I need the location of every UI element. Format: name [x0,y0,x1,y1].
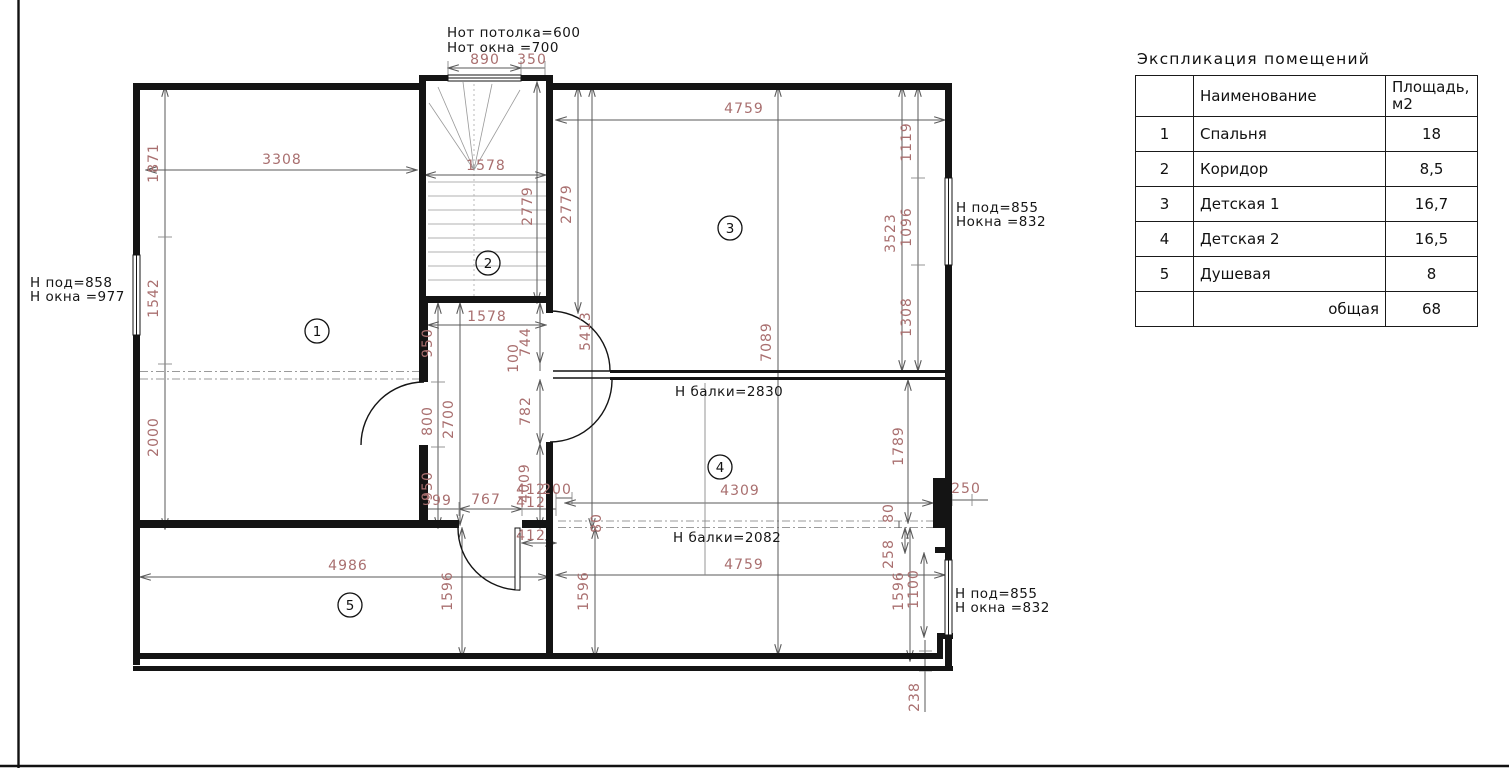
dimension-label: 800 [420,406,436,436]
dimension-label: 80 [881,503,897,523]
explication-title: Экспликация помещений [1137,50,1477,68]
room-number-cell: 4 [1136,222,1194,257]
header-area-line2: м2 [1392,96,1471,113]
dimension-label: 7089 [759,322,775,362]
header-number-cell [1136,76,1194,117]
dimension-label: 200 [542,482,572,498]
room-number-cell: 5 [1136,257,1194,292]
room-name-cell: Детская 2 [1194,222,1386,257]
table-row: 4Детская 216,5 [1136,222,1478,257]
room-area-cell: 68 [1386,292,1478,327]
dimension-label: 3308 [262,152,302,168]
header-name-cell: Наименование [1194,76,1386,117]
room-number-cell [1136,292,1194,327]
table-header-row: Наименование Площадь, м2 [1136,76,1478,117]
room-number: 1 [313,324,322,340]
header-area-cell: Площадь, м2 [1386,76,1478,117]
dimension-label: 2779 [520,186,536,226]
height-annotation: Hот потолка=600 [447,25,580,41]
dimension-label: 767 [471,492,501,508]
table-row: 3Детская 116,7 [1136,187,1478,222]
dimension-label: 1100 [906,569,922,609]
dimension-label: 4009 [517,463,533,503]
room-name-cell: Спальня [1194,117,1386,152]
dimension-label: 2700 [441,399,457,439]
table-row: 1Спальня18 [1136,117,1478,152]
dimension-label: 4309 [720,483,760,499]
dimension-label: 250 [951,481,981,497]
room-explication: Экспликация помещений Наименование Площа… [1135,50,1477,327]
room-name-cell: Душевая [1194,257,1386,292]
dimension-label: 1578 [467,309,507,325]
dimension-label: 1542 [146,278,162,318]
dimension-label: 1789 [891,426,907,466]
dimension-label: 2000 [146,417,162,457]
room-number: 5 [346,598,355,614]
dimension-label: 350 [517,52,547,68]
room-name-cell: общая [1194,292,1386,327]
dimension-label: 4986 [328,558,368,574]
room-area-cell: 8 [1386,257,1478,292]
dimension-label: 1596 [576,571,592,611]
dimension-label: 950 [420,471,436,501]
room-number: 4 [716,460,725,476]
table-row: 2Коридор8,5 [1136,152,1478,187]
room-name-cell: Коридор [1194,152,1386,187]
room-number: 2 [484,256,493,272]
header-area-line1: Площадь, [1392,79,1471,96]
dimension-label: 1308 [899,297,915,337]
dimension-label: 4759 [724,101,764,117]
dimension-label: 1119 [899,122,915,162]
dimension-labels: 8903503308157847591578399767412200412412… [146,52,981,712]
room-number-cell: 3 [1136,187,1194,222]
table-total-row: общая68 [1136,292,1478,327]
room-area-cell: 8,5 [1386,152,1478,187]
height-annotation: Нокна =832 [956,214,1046,230]
room-area-cell: 18 [1386,117,1478,152]
dimension-label: 412 [516,528,546,544]
dimension-label: 1596 [891,571,907,611]
dimension-label: 890 [470,52,500,68]
height-annotation: H балки=2082 [673,530,781,546]
dimension-label: 258 [881,539,897,569]
room-number: 3 [726,221,735,237]
room-number-cell: 1 [1136,117,1194,152]
height-annotation: H балки=2830 [675,384,783,400]
dimension-label: 3523 [883,213,899,253]
beam-wall [553,370,946,380]
dimension-label: 100 [506,343,522,373]
height-annotation: H окна =977 [30,289,125,305]
explication-table: Наименование Площадь, м2 1Спальня182Кори… [1135,75,1478,327]
room-name-cell: Детская 1 [1194,187,1386,222]
dimension-label: 1578 [466,158,506,174]
room-area-cell: 16,5 [1386,222,1478,257]
dimension-label: 80 [589,513,605,533]
dimension-label: 1596 [440,571,456,611]
dimension-label: 1871 [146,143,162,183]
dimension-label: 782 [518,396,534,426]
height-annotation: H окна =832 [955,600,1050,616]
dimension-label: 950 [420,328,436,358]
dimension-label: 5413 [578,311,594,351]
room-area-cell: 16,7 [1386,187,1478,222]
room-number-cell: 2 [1136,152,1194,187]
dimension-label: 4759 [724,557,764,573]
dimension-label: 2779 [559,184,575,224]
table-row: 5Душевая8 [1136,257,1478,292]
windows [133,75,952,635]
dimension-label: 1096 [899,207,915,247]
dimension-label: 238 [907,682,923,712]
door-swings [361,311,612,590]
